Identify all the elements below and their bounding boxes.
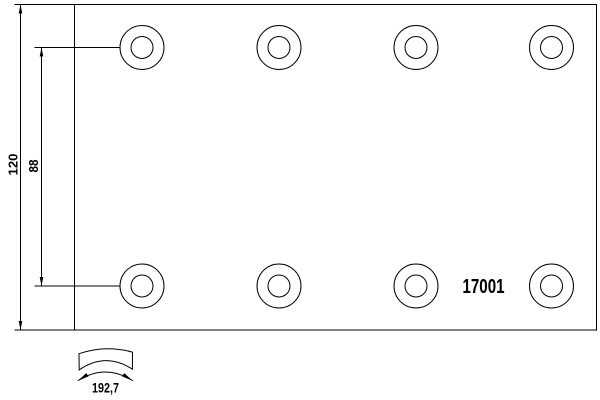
- svg-text:88: 88: [26, 160, 41, 173]
- svg-text:17001: 17001: [463, 276, 505, 298]
- svg-text:192,7: 192,7: [92, 381, 119, 396]
- svg-text:120: 120: [6, 154, 21, 176]
